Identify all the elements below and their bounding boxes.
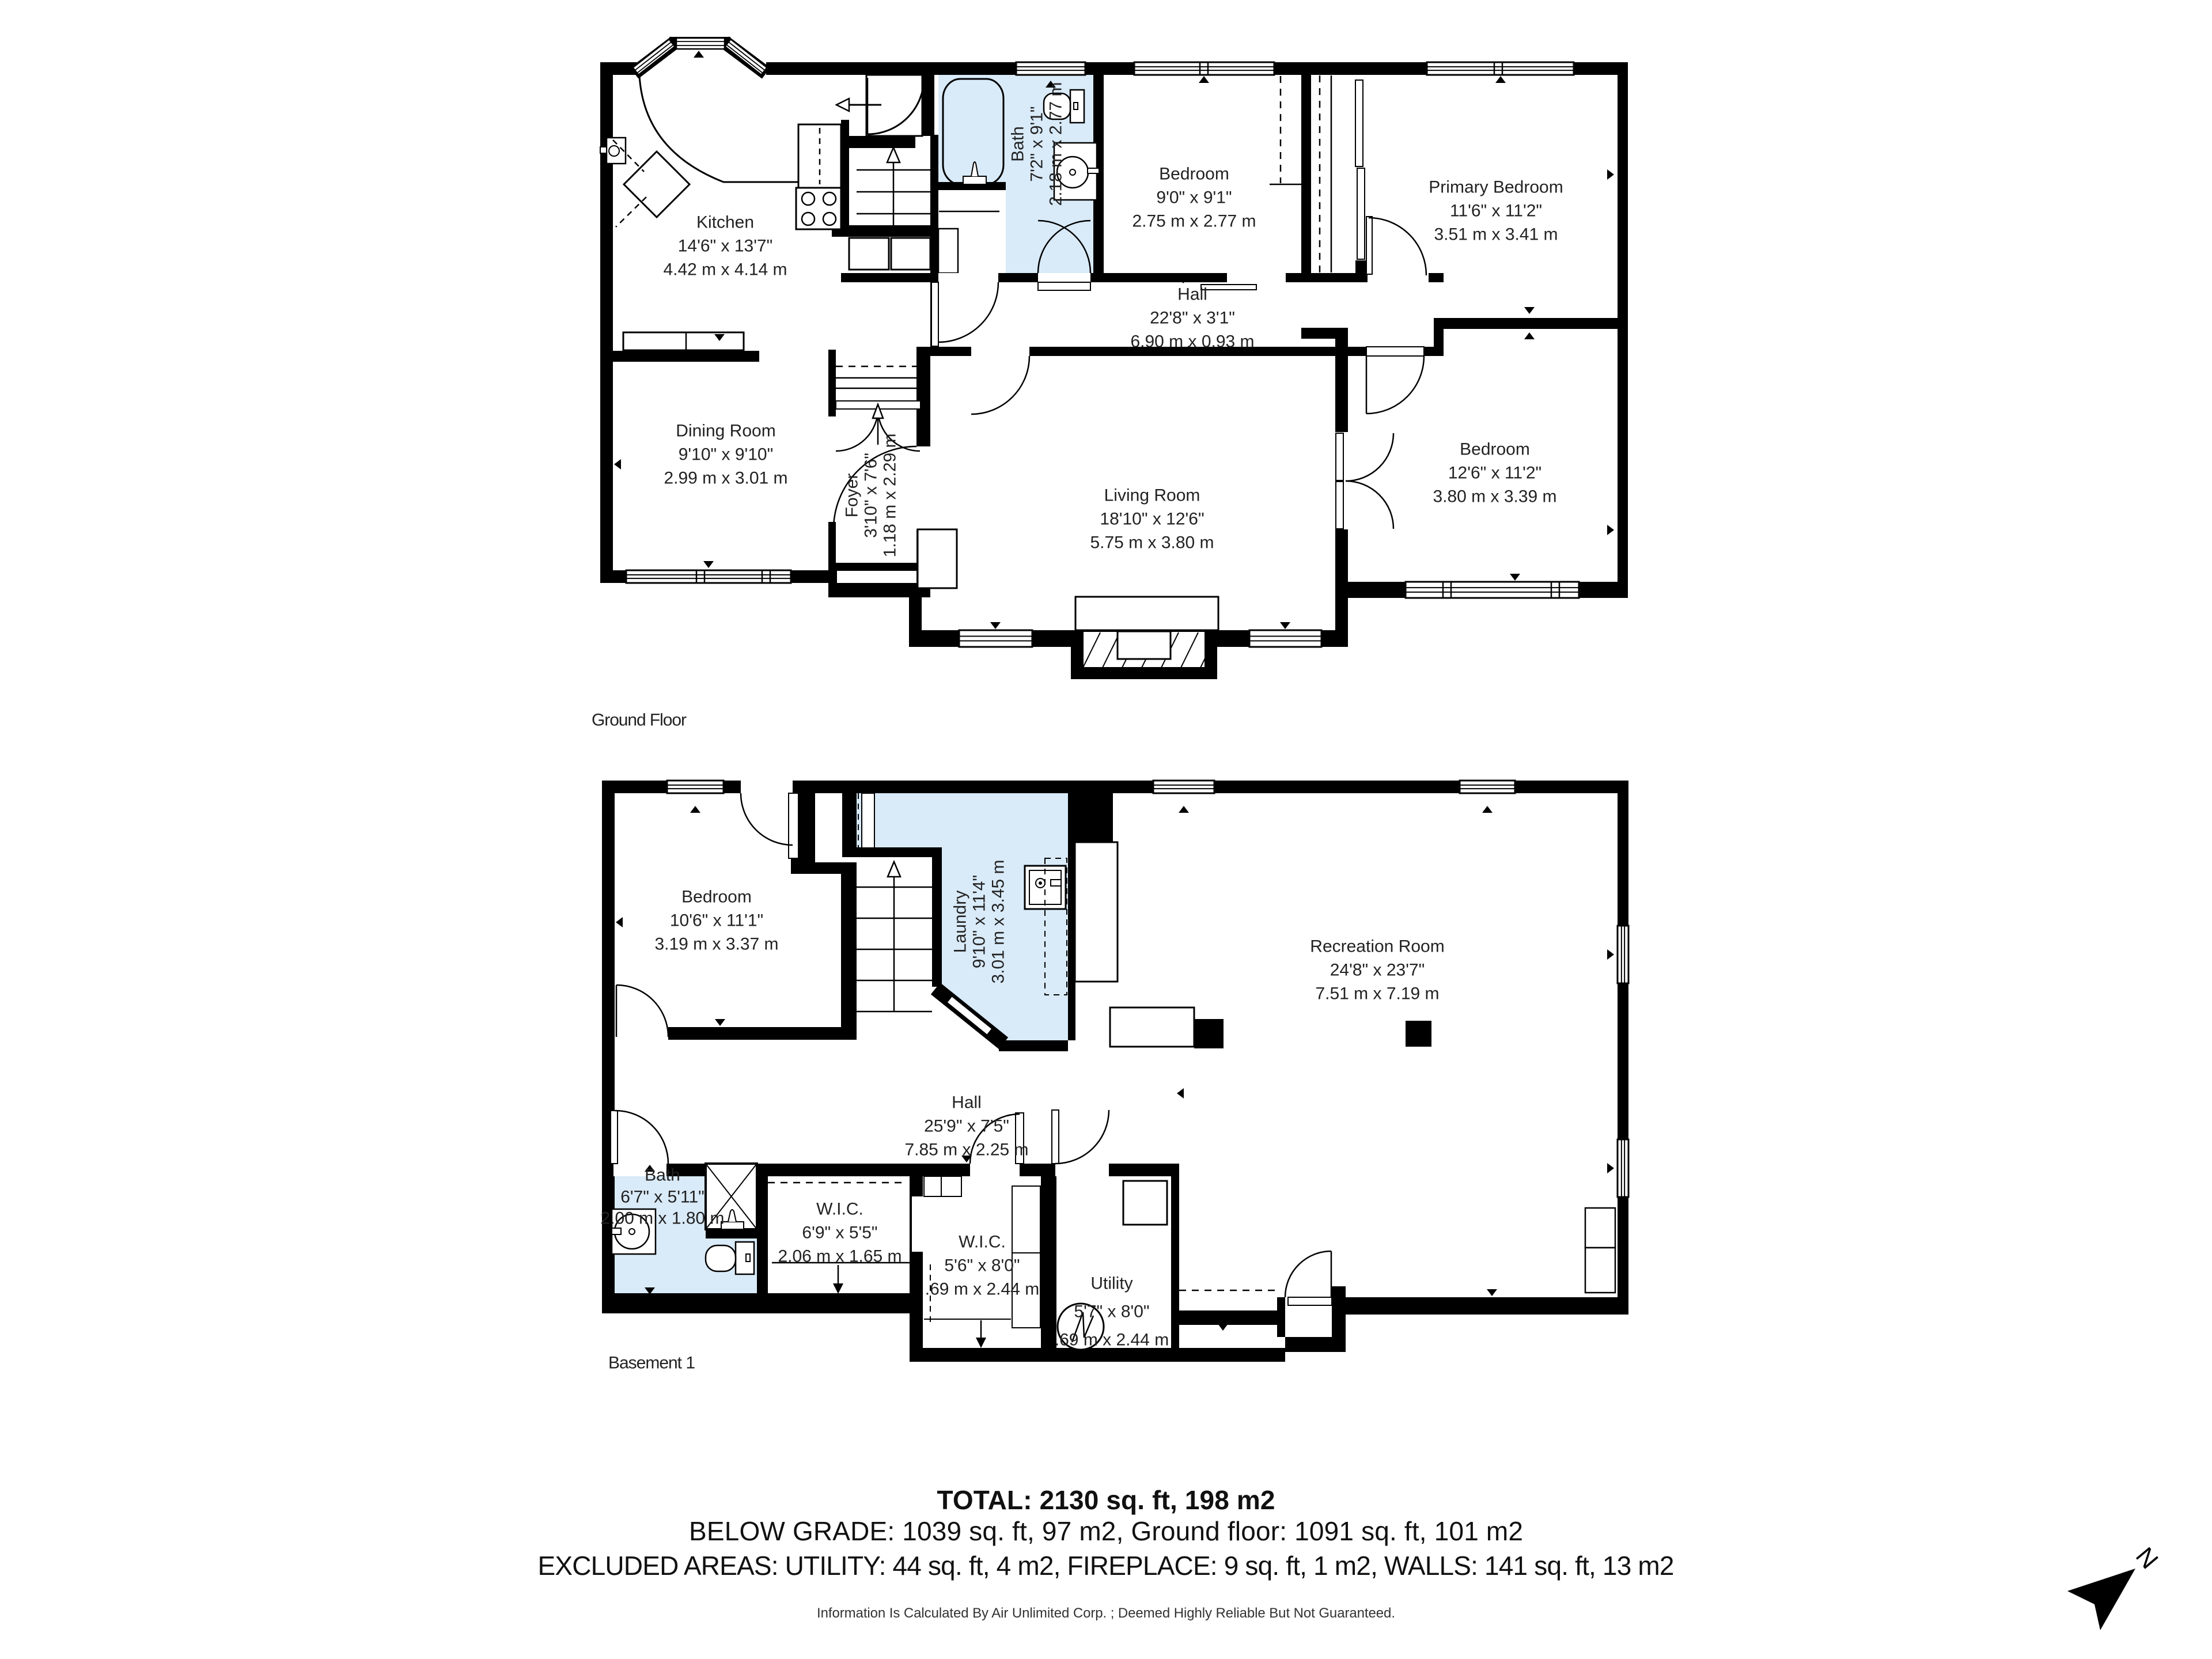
svg-text:2.06 m x 1.65 m: 2.06 m x 1.65 m bbox=[778, 1247, 902, 1266]
svg-text:Utility: Utility bbox=[1090, 1274, 1132, 1293]
svg-text:Bath: Bath bbox=[645, 1166, 680, 1185]
svg-text:5'7" x 8'0": 5'7" x 8'0" bbox=[1074, 1302, 1149, 1321]
svg-text:Foyer: Foyer bbox=[843, 474, 862, 518]
svg-text:Hall: Hall bbox=[1177, 285, 1207, 304]
svg-text:9'0" x 9'1": 9'0" x 9'1" bbox=[1156, 188, 1232, 207]
svg-text:3.01 m x 3.45 m: 3.01 m x 3.45 m bbox=[989, 859, 1008, 983]
svg-text:Dining Room: Dining Room bbox=[676, 422, 775, 441]
svg-text:12'6" x 11'2": 12'6" x 11'2" bbox=[1448, 464, 1541, 483]
svg-text:14'6" x 13'7": 14'6" x 13'7" bbox=[678, 237, 773, 256]
svg-text:5'6" x 8'0": 5'6" x 8'0" bbox=[944, 1256, 1020, 1275]
svg-text:7.51 m x 7.19 m: 7.51 m x 7.19 m bbox=[1315, 984, 1439, 1003]
svg-text:W.I.C.: W.I.C. bbox=[816, 1200, 863, 1219]
svg-text:4.42 m x 4.14 m: 4.42 m x 4.14 m bbox=[663, 260, 787, 279]
svg-text:EXCLUDED AREAS: UTILITY: 44 sq: EXCLUDED AREAS: UTILITY: 44 sq. ft, 4 m2… bbox=[538, 1551, 1675, 1581]
svg-text:Living Room: Living Room bbox=[1104, 486, 1200, 505]
svg-text:7'2" x 9'1": 7'2" x 9'1" bbox=[1028, 106, 1047, 181]
svg-text:3'10" x 7'6": 3'10" x 7'6" bbox=[862, 453, 881, 538]
svg-text:6'9" x 5'5": 6'9" x 5'5" bbox=[802, 1224, 877, 1243]
svg-text:Bedroom: Bedroom bbox=[1159, 165, 1229, 184]
svg-text:9'10" x 9'10": 9'10" x 9'10" bbox=[679, 445, 774, 464]
svg-text:7.85 m x 2.25 m: 7.85 m x 2.25 m bbox=[904, 1141, 1028, 1160]
svg-text:3.19 m x 3.37 m: 3.19 m x 3.37 m bbox=[654, 935, 778, 954]
svg-text:18'10" x 12'6": 18'10" x 12'6" bbox=[1100, 510, 1204, 529]
svg-text:Kitchen: Kitchen bbox=[696, 213, 754, 232]
svg-text:Bedroom: Bedroom bbox=[681, 888, 752, 907]
svg-text:3.51 m x 3.41 m: 3.51 m x 3.41 m bbox=[1434, 225, 1558, 244]
svg-text:W.I.C.: W.I.C. bbox=[959, 1233, 1006, 1252]
svg-text:Bath: Bath bbox=[1009, 126, 1028, 162]
svg-text:TOTAL: 2130 sq. ft, 198 m2: TOTAL: 2130 sq. ft, 198 m2 bbox=[937, 1485, 1275, 1515]
svg-text:3.80 m x 3.39 m: 3.80 m x 3.39 m bbox=[1433, 487, 1556, 506]
svg-text:2.18 m x 2.77 m: 2.18 m x 2.77 m bbox=[1047, 82, 1066, 206]
svg-text:Ground Floor: Ground Floor bbox=[592, 711, 687, 730]
svg-text:.69 m x 2.44 m: .69 m x 2.44 m bbox=[1055, 1331, 1169, 1350]
svg-text:2.75 m x 2.77 m: 2.75 m x 2.77 m bbox=[1132, 212, 1256, 231]
svg-text:1.18 m x 2.29 m: 1.18 m x 2.29 m bbox=[881, 433, 900, 557]
svg-text:6.90 m x 0.93 m: 6.90 m x 0.93 m bbox=[1130, 332, 1254, 351]
svg-text:Hall: Hall bbox=[952, 1093, 982, 1112]
svg-text:10'6" x 11'1": 10'6" x 11'1" bbox=[670, 911, 763, 930]
svg-text:Bedroom: Bedroom bbox=[1460, 440, 1530, 459]
svg-text:5.75 m x 3.80 m: 5.75 m x 3.80 m bbox=[1090, 533, 1214, 552]
svg-text:22'8" x 3'1": 22'8" x 3'1" bbox=[1150, 309, 1235, 328]
svg-text:BELOW GRADE: 1039 sq. ft, 97 m: BELOW GRADE: 1039 sq. ft, 97 m2, Ground … bbox=[689, 1516, 1523, 1546]
svg-text:25'9" x 7'5": 25'9" x 7'5" bbox=[924, 1117, 1009, 1136]
svg-text:Laundry: Laundry bbox=[951, 891, 970, 953]
svg-text:.69 m x 2.44 m: .69 m x 2.44 m bbox=[925, 1280, 1039, 1299]
svg-text:11'6" x 11'2": 11'6" x 11'2" bbox=[1450, 202, 1542, 221]
svg-text:24'8" x 23'7": 24'8" x 23'7" bbox=[1330, 961, 1425, 980]
svg-text:9'10" x 11'4": 9'10" x 11'4" bbox=[970, 875, 989, 968]
svg-text:2.00 m x 1.80 m: 2.00 m x 1.80 m bbox=[600, 1209, 724, 1228]
svg-text:Information Is Calculated By A: Information Is Calculated By Air Unlimit… bbox=[817, 1605, 1395, 1621]
svg-text:2.99 m x 3.01 m: 2.99 m x 3.01 m bbox=[664, 469, 787, 488]
svg-text:Recreation Room: Recreation Room bbox=[1310, 937, 1444, 956]
svg-text:Basement 1: Basement 1 bbox=[608, 1354, 695, 1373]
svg-text:6'7" x 5'11": 6'7" x 5'11" bbox=[620, 1188, 704, 1207]
svg-text:Primary Bedroom: Primary Bedroom bbox=[1429, 178, 1563, 197]
